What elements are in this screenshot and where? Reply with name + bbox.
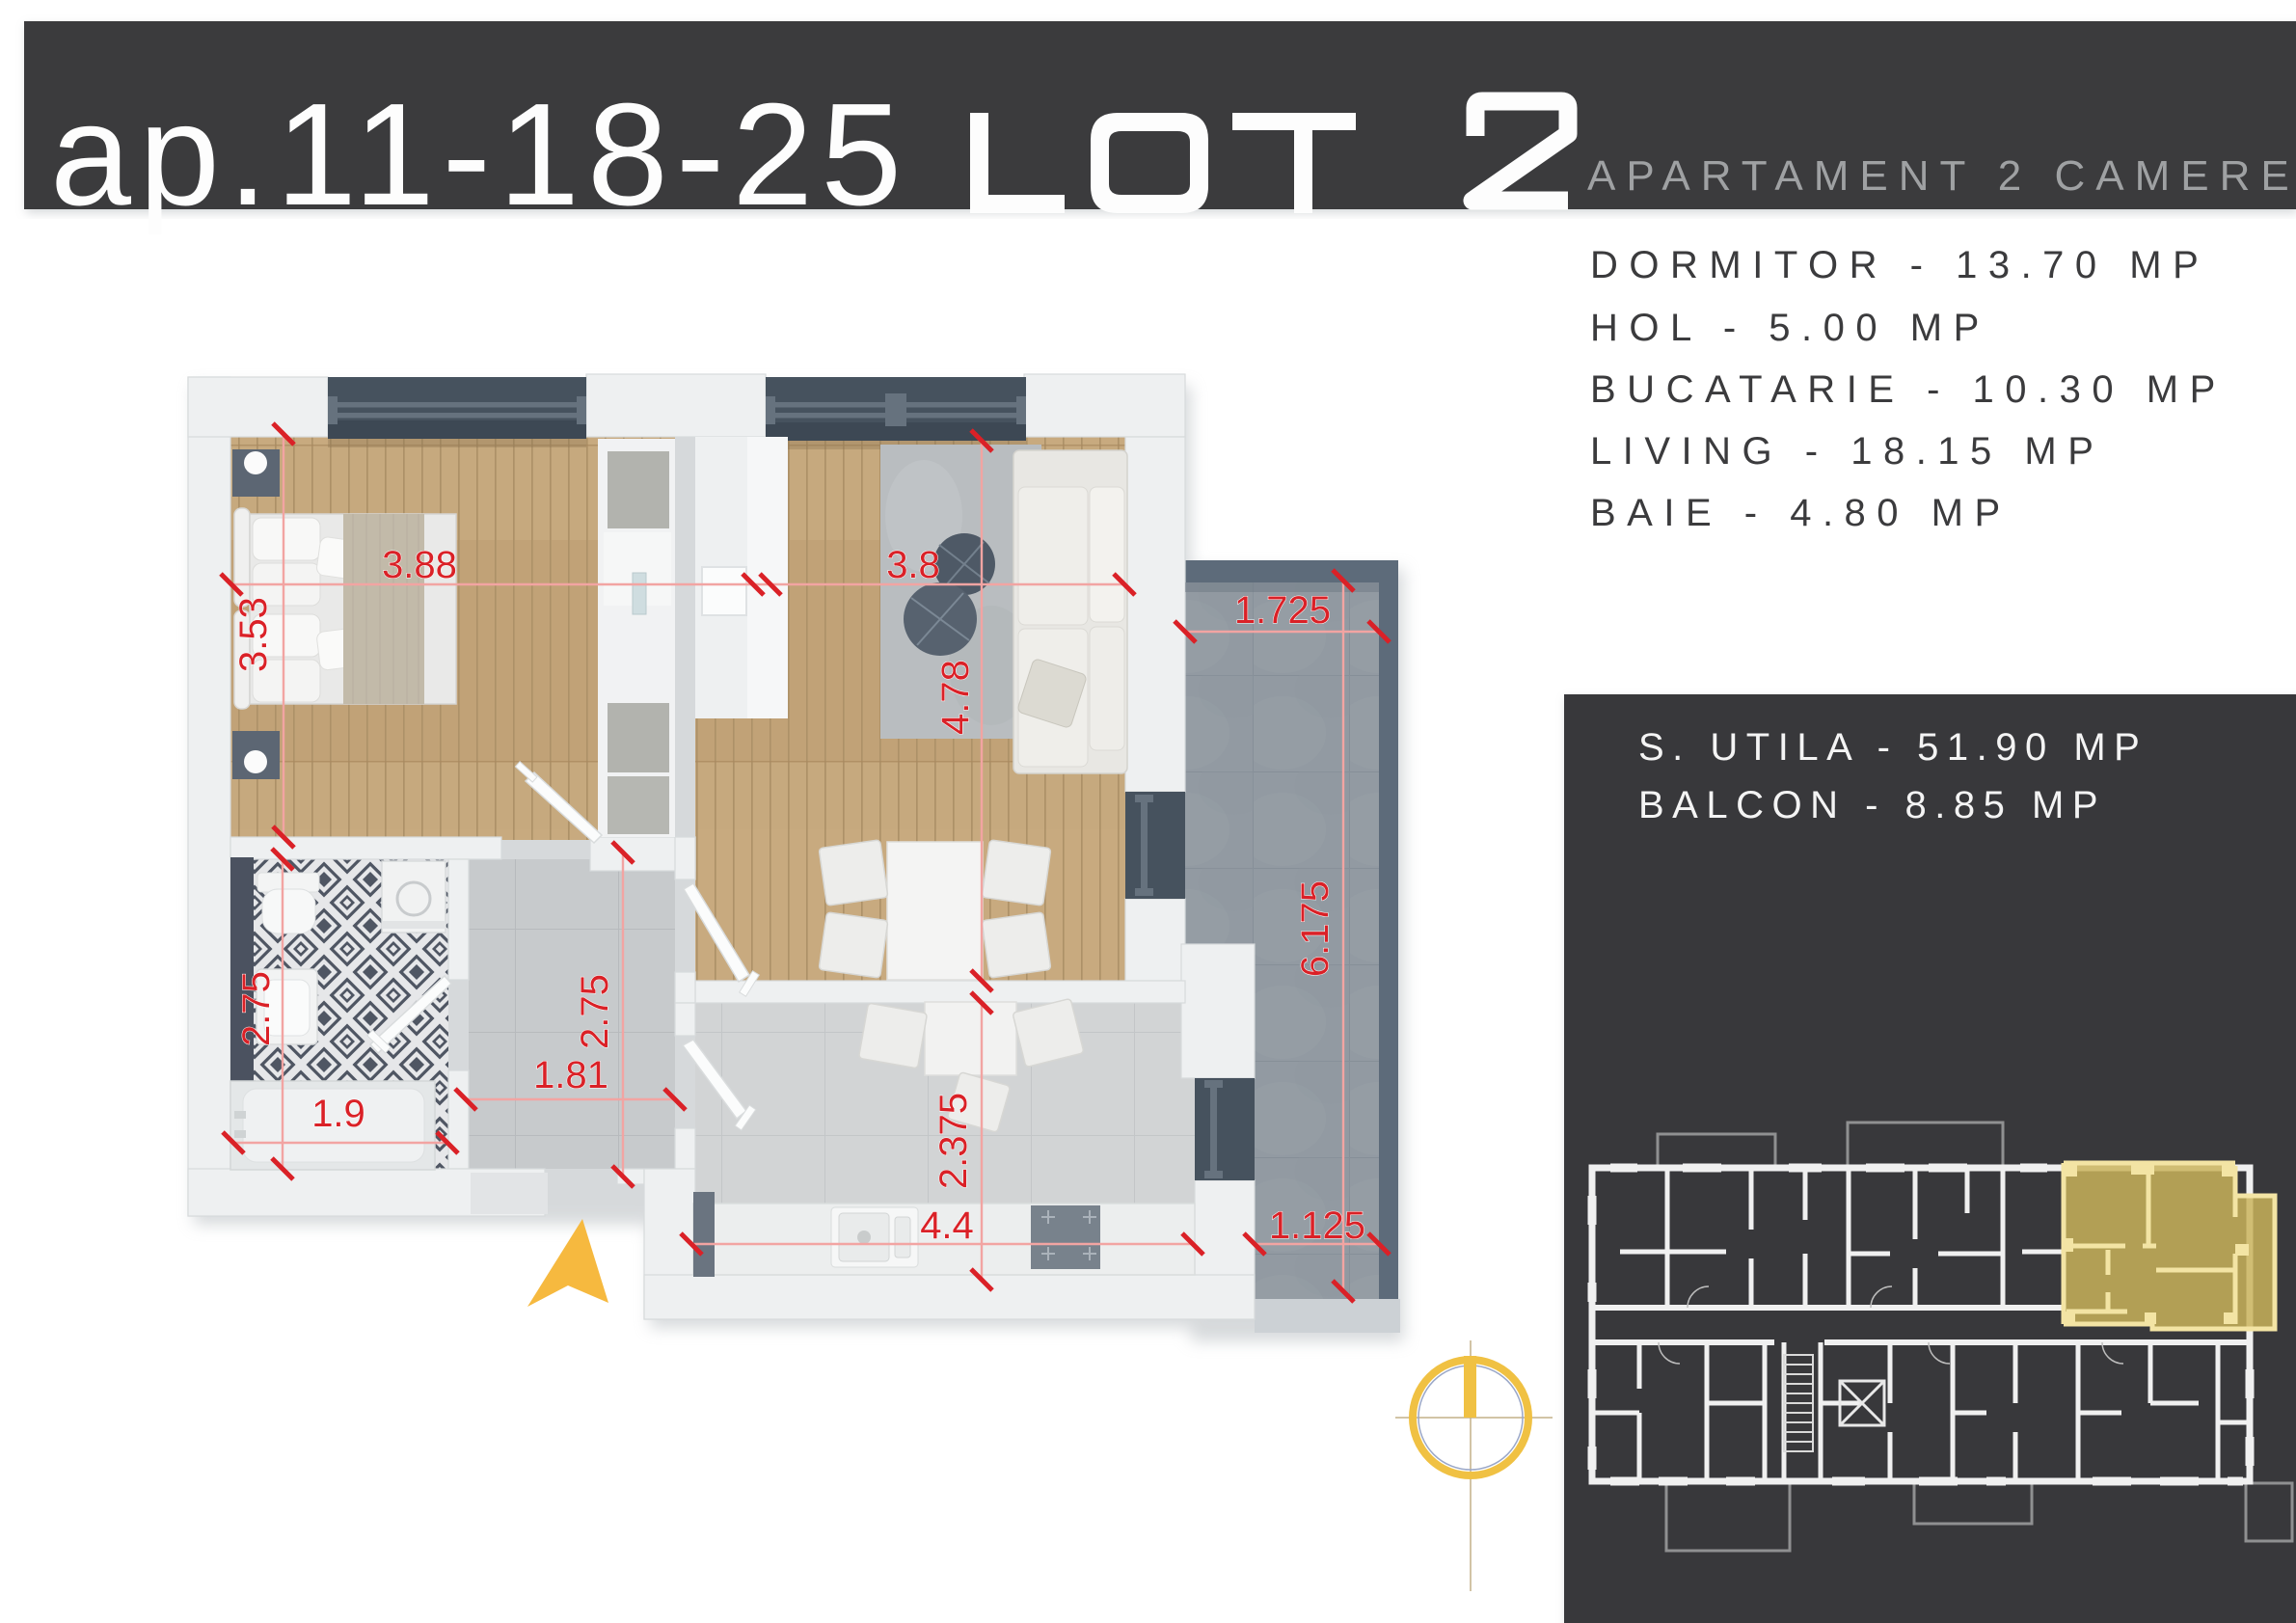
svg-text:BALCON - 8.85 MP: BALCON - 8.85 MP [1638, 784, 2106, 826]
svg-text:HOL - 5.00 MP: HOL - 5.00 MP [1590, 307, 1990, 349]
svg-text:BUCATARIE - 10.30 MP: BUCATARIE - 10.30 MP [1590, 368, 2227, 411]
svg-text:ap.11-18-25: ap.11-18-25 [50, 72, 909, 235]
svg-text:2.375: 2.375 [932, 1093, 975, 1189]
svg-text:1.81: 1.81 [533, 1054, 608, 1096]
svg-text:BAIE - 4.80 MP: BAIE - 4.80 MP [1590, 492, 2012, 534]
svg-text:1.725: 1.725 [1234, 589, 1331, 632]
svg-text:4.78: 4.78 [934, 660, 977, 735]
svg-text:3.88: 3.88 [382, 544, 457, 586]
svg-text:1.125: 1.125 [1269, 1204, 1365, 1247]
svg-text:LIVING - 18.15 MP: LIVING - 18.15 MP [1590, 430, 2104, 473]
svg-text:S. UTILA - 51.90 MP: S. UTILA - 51.90 MP [1638, 726, 2147, 769]
svg-text:3.8: 3.8 [886, 544, 940, 586]
svg-text:3.53: 3.53 [232, 597, 275, 672]
svg-text:4.4: 4.4 [920, 1204, 974, 1247]
svg-text:DORMITOR - 13.70 MP: DORMITOR - 13.70 MP [1590, 244, 2209, 286]
svg-text:6.175: 6.175 [1294, 880, 1337, 977]
svg-text:2.75: 2.75 [235, 971, 278, 1046]
svg-text:2.75: 2.75 [574, 974, 616, 1049]
svg-text:1.9: 1.9 [311, 1093, 365, 1135]
svg-text:APARTAMENT 2 CAMERE: APARTAMENT 2 CAMERE [1587, 152, 2296, 200]
